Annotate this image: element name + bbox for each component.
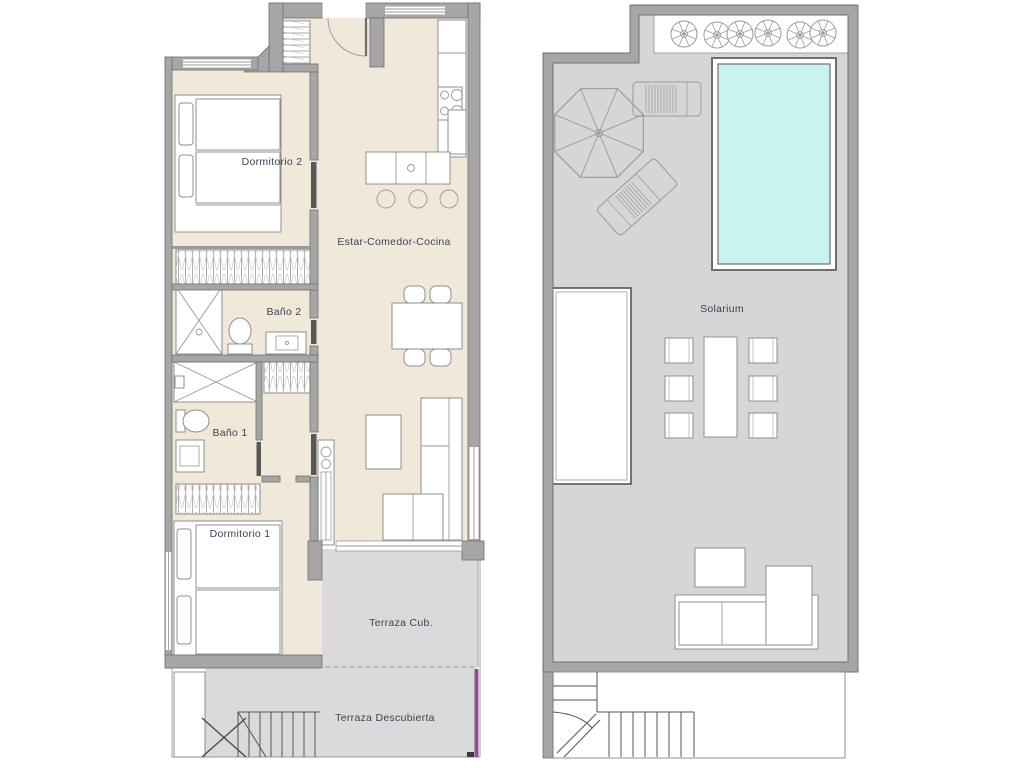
room-label-estar-comedor-cocina: Estar-Comedor-Cocina bbox=[337, 236, 450, 248]
stairwell-void bbox=[552, 288, 631, 484]
door-leaf-bano1 bbox=[257, 442, 262, 476]
wardrobe-dormitorio-1 bbox=[176, 484, 260, 514]
roof-stairwell bbox=[543, 672, 845, 758]
solarium-dining-set bbox=[665, 337, 777, 438]
boundary-corner-mark bbox=[467, 752, 474, 757]
plant-icon bbox=[810, 20, 836, 46]
door-leaf-dormitorio2 bbox=[311, 162, 317, 208]
plant-icon bbox=[704, 22, 730, 48]
plant-icon bbox=[671, 21, 697, 47]
entry-window bbox=[385, 7, 445, 15]
utility-column bbox=[318, 440, 334, 545]
room-label-terraza-descubierta: Terraza Descubierta bbox=[335, 712, 435, 724]
coffee-table bbox=[366, 415, 401, 469]
wardrobe-dormitorio-2 bbox=[176, 250, 312, 284]
room-label-dormitorio-1: Dormitorio 1 bbox=[210, 528, 271, 540]
bed-dormitorio-1 bbox=[174, 521, 282, 658]
planter bbox=[174, 672, 205, 757]
toilet-bano1 bbox=[183, 410, 209, 432]
room-label-bano-2: Baño 2 bbox=[266, 306, 301, 318]
wardrobe-hall bbox=[264, 362, 310, 393]
kitchen-island bbox=[366, 152, 450, 184]
plant-icon bbox=[727, 21, 753, 47]
door-leaf-bano2 bbox=[311, 320, 317, 344]
sink-bano2 bbox=[266, 332, 306, 354]
plot-boundary-purple-line bbox=[475, 669, 479, 757]
door-leaf-hall bbox=[311, 434, 317, 475]
floorplan-svg: Dormitorio 2 Estar-Comedor-Cocina Baño 2… bbox=[0, 0, 1024, 768]
swimming-pool bbox=[712, 58, 836, 270]
dormitorio2-window bbox=[183, 60, 251, 68]
floorplan-canvas: Dormitorio 2 Estar-Comedor-Cocina Baño 2… bbox=[0, 0, 1024, 768]
room-label-terraza-cub: Terraza Cub. bbox=[369, 617, 433, 629]
solarium-coffee-table bbox=[695, 548, 745, 587]
roof-plan: Solarium bbox=[543, 5, 858, 758]
solarium-table bbox=[704, 337, 737, 437]
plant-icon bbox=[787, 22, 813, 48]
roof-planter-strip bbox=[654, 15, 848, 53]
entry-closet bbox=[283, 21, 310, 66]
terraza-cubierta-floor bbox=[322, 549, 478, 667]
apartment-plan: Dormitorio 2 Estar-Comedor-Cocina Baño 2… bbox=[165, 3, 484, 757]
terrace-slider-door bbox=[336, 541, 462, 551]
plant-icon bbox=[755, 20, 781, 46]
dining-table bbox=[392, 303, 462, 349]
room-label-bano-1: Baño 1 bbox=[212, 427, 247, 439]
toilet-bano2 bbox=[229, 318, 251, 344]
room-label-dormitorio-2: Dormitorio 2 bbox=[242, 156, 303, 168]
room-label-solarium: Solarium bbox=[700, 303, 744, 315]
